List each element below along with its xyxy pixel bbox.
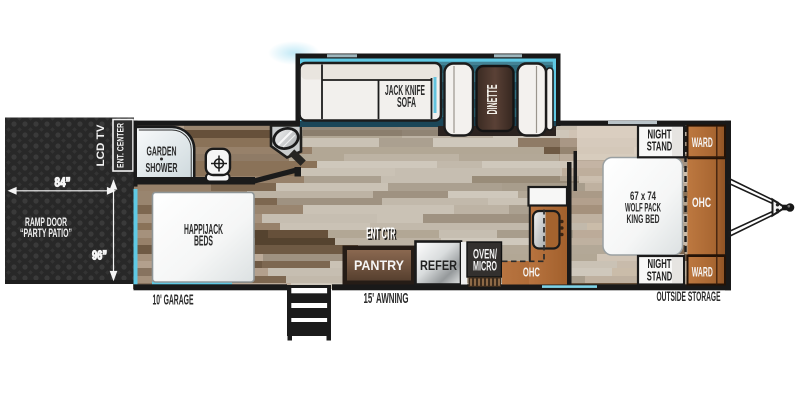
svg-text:STAND: STAND bbox=[647, 139, 673, 154]
svg-text:REFER: REFER bbox=[420, 258, 457, 273]
svg-text:SOFA: SOFA bbox=[397, 95, 416, 111]
svg-text:STAND: STAND bbox=[647, 268, 673, 283]
svg-text:ENT CTR: ENT CTR bbox=[366, 226, 395, 243]
svg-text:WARD: WARD bbox=[692, 265, 713, 280]
svg-text:ENT. CENTER: ENT. CENTER bbox=[116, 123, 127, 168]
svg-text:DINETTE: DINETTE bbox=[484, 85, 501, 115]
svg-text:WARD: WARD bbox=[692, 135, 713, 150]
svg-text:SHOWER: SHOWER bbox=[146, 161, 178, 175]
svg-text:OHC: OHC bbox=[692, 194, 711, 210]
svg-text:PANTRY: PANTRY bbox=[354, 257, 405, 273]
svg-text:MICRO: MICRO bbox=[473, 259, 497, 274]
svg-text:10' GARAGE: 10' GARAGE bbox=[153, 292, 194, 309]
svg-text:LCD TV: LCD TV bbox=[95, 124, 107, 167]
svg-text:96”: 96” bbox=[92, 249, 107, 263]
svg-text:GARDEN: GARDEN bbox=[147, 145, 177, 159]
svg-text:84”: 84” bbox=[55, 175, 71, 189]
svg-text:15' AWNING: 15' AWNING bbox=[364, 291, 409, 307]
svg-text:“PARTY PATIO”: “PARTY PATIO” bbox=[20, 226, 72, 240]
svg-text:OHC: OHC bbox=[523, 265, 540, 280]
svg-text:KING BED: KING BED bbox=[627, 212, 660, 226]
svg-text:OUTSIDE STORAGE: OUTSIDE STORAGE bbox=[657, 289, 721, 304]
svg-text:BEDS: BEDS bbox=[194, 233, 213, 250]
